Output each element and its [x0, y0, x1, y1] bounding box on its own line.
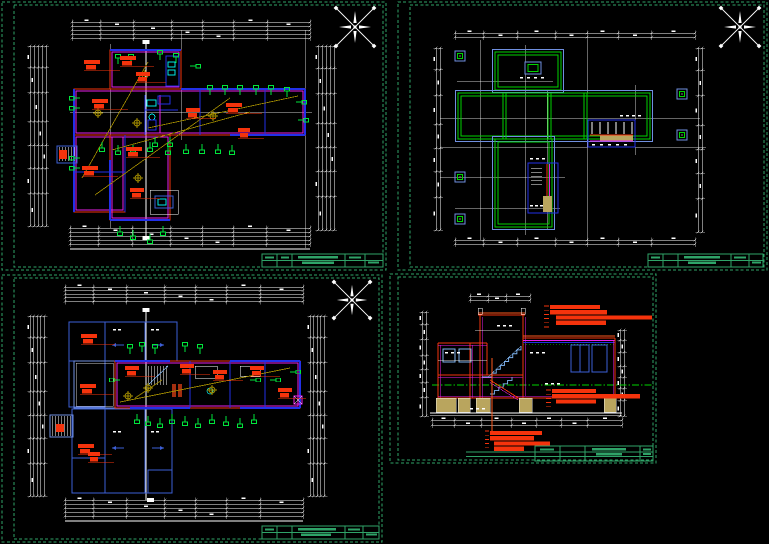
sheet-3-second-floor-electrical-plan[interactable] [2, 275, 382, 542]
sheet-4-building-section[interactable] [390, 274, 656, 463]
sheet-1-ground-floor-electrical-plan[interactable] [2, 2, 386, 270]
north-arrow-icon [719, 6, 762, 49]
sheet-border [14, 5, 383, 267]
sheet-2-foundation-plan[interactable] [398, 2, 767, 270]
cad-drawing-svg [0, 0, 769, 544]
cad-canvas[interactable] [0, 0, 769, 544]
north-arrow-icon [332, 280, 373, 321]
north-arrow-icon [334, 6, 377, 49]
